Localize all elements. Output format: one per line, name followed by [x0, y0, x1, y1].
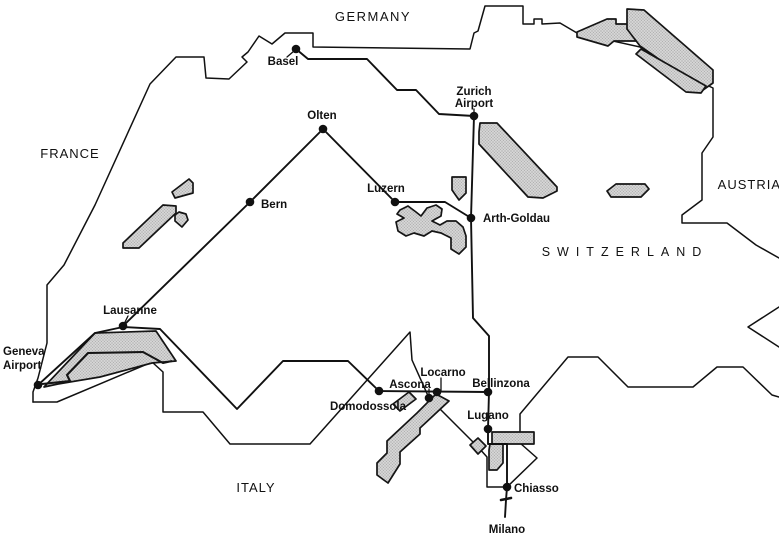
- city-label-bellinzona: Bellinzona: [472, 378, 530, 390]
- city-label-domodossola: Domodossola: [330, 401, 407, 413]
- city-label-arth-goldau: Arth-Goldau: [483, 213, 550, 225]
- city-label-chiasso: Chiasso: [514, 483, 559, 495]
- city-label-milano: Milano: [489, 524, 525, 536]
- city-dot-geneva-airport: [34, 381, 43, 390]
- city-label-basel: Basel: [268, 56, 299, 68]
- country-label-austria: AUSTRIA: [718, 177, 779, 192]
- city-dot-lausanne: [119, 322, 128, 331]
- city-label-zurich-airport: Airport: [455, 98, 494, 110]
- city-label-geneva-airport: Geneva: [3, 346, 45, 358]
- city-label-lausanne: Lausanne: [103, 305, 157, 317]
- map-canvas: BaselZurichAirportOltenBernLuzernArth-Go…: [0, 0, 779, 536]
- city-dot-bern: [246, 198, 255, 207]
- city-dot-locarno: [433, 388, 442, 397]
- railway-lines: [38, 49, 507, 517]
- city-dot-lugano: [484, 425, 493, 434]
- city-label-olten: Olten: [307, 110, 336, 122]
- city-dot-ascona: [425, 394, 434, 403]
- border-crossing-tick: [501, 498, 511, 500]
- lake-neuchatel-upper: [172, 179, 193, 198]
- city-dot-basel: [292, 45, 301, 54]
- switzerland-rail-map: BaselZurichAirportOltenBernLuzernArth-Go…: [0, 0, 779, 536]
- city-dot-luzern: [391, 198, 400, 207]
- lake-lugano-bar: [492, 432, 534, 444]
- city-label-locarno: Locarno: [420, 367, 465, 379]
- country-label-italy: ITALY: [236, 480, 275, 495]
- lake-lucerne: [396, 205, 466, 254]
- country-label-switzerland: SWITZERLAND: [542, 245, 709, 259]
- lake-zurich: [479, 123, 557, 198]
- city-dot-olten: [319, 125, 328, 134]
- city-dot-chiasso: [503, 483, 512, 492]
- railway-basel-zurich-line: [296, 49, 474, 116]
- lake-walensee: [607, 184, 649, 197]
- city-label-geneva-airport: Airport: [3, 360, 42, 372]
- city-label-ascona: Ascona: [389, 379, 431, 391]
- border-east-notch: [748, 307, 779, 347]
- lake-neuchatel-main: [123, 205, 176, 248]
- city-label-lugano: Lugano: [467, 410, 509, 422]
- lake-zug: [452, 177, 466, 200]
- city-label-zurich-airport: Zurich: [456, 86, 491, 98]
- country-label-france: FRANCE: [40, 146, 99, 161]
- city-dot-zurich-airport: [470, 112, 479, 121]
- city-dot-arth-goldau: [467, 214, 476, 223]
- city-dot-domodossola: [375, 387, 384, 396]
- city-label-bern: Bern: [261, 199, 287, 211]
- lake-lugano-hook: [489, 444, 503, 470]
- city-label-luzern: Luzern: [367, 183, 405, 195]
- country-label-germany: GERMANY: [335, 9, 411, 24]
- city-markers: [34, 45, 512, 492]
- lake-murten: [175, 212, 188, 227]
